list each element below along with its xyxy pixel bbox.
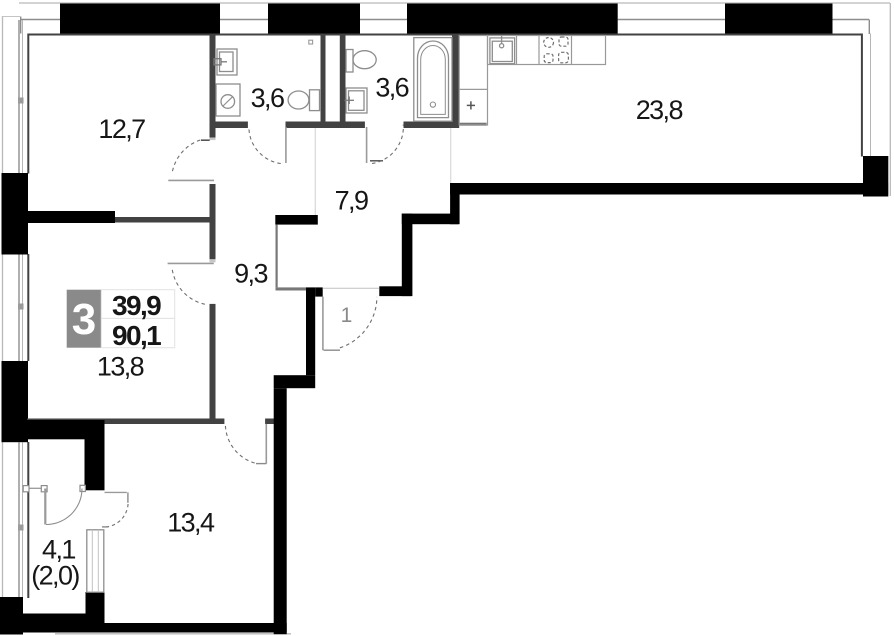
svg-text:3,6: 3,6 [375, 73, 408, 103]
svg-text:23,8: 23,8 [636, 95, 683, 125]
svg-text:39,9: 39,9 [112, 290, 161, 321]
svg-text:3: 3 [72, 295, 96, 344]
svg-text:13,4: 13,4 [167, 508, 215, 538]
svg-text:7,9: 7,9 [335, 185, 368, 215]
svg-text:3,6: 3,6 [251, 83, 284, 113]
svg-text:1: 1 [341, 304, 353, 327]
svg-text:9,3: 9,3 [234, 259, 267, 289]
svg-text:90,1: 90,1 [112, 320, 161, 351]
svg-text:13,8: 13,8 [97, 352, 144, 382]
svg-text:(2,0): (2,0) [31, 560, 79, 590]
svg-text:12,7: 12,7 [98, 114, 145, 144]
